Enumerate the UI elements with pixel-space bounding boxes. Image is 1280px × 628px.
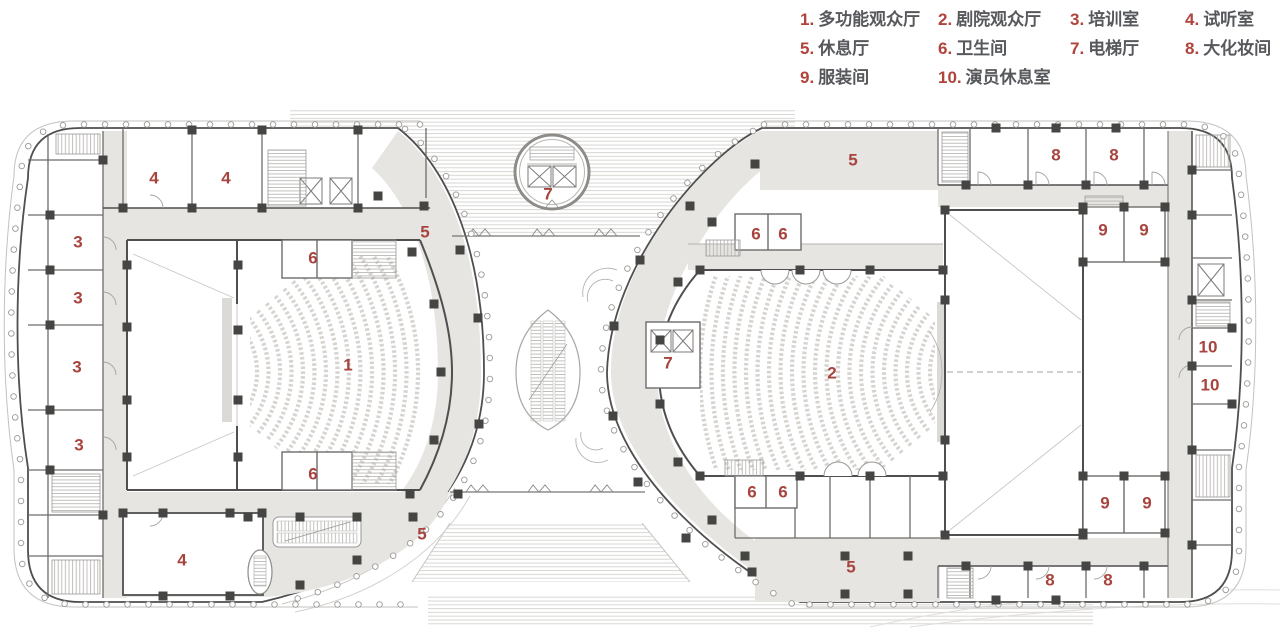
column-dot: [390, 553, 396, 559]
column-dot: [14, 436, 20, 442]
column-dot: [1017, 602, 1023, 608]
column-dot: [1221, 133, 1227, 139]
column-dot: [42, 595, 48, 601]
column-dot: [849, 602, 855, 608]
column-dot: [486, 334, 492, 340]
column: [354, 204, 363, 213]
column-dot: [975, 602, 981, 608]
column-dot: [1139, 122, 1145, 128]
column-dot: [719, 555, 725, 561]
legend-item-label: 培训室: [1088, 10, 1139, 29]
column: [430, 300, 439, 309]
column: [454, 490, 463, 499]
column-dot: [60, 123, 66, 129]
column-dot: [687, 527, 693, 533]
room-label: 5: [417, 525, 426, 544]
column-dot: [1236, 171, 1242, 177]
room-label: 6: [308, 465, 317, 484]
column: [46, 466, 55, 475]
column-dot: [1241, 423, 1247, 429]
column-dot: [782, 122, 788, 128]
column-dot: [377, 602, 383, 608]
column: [1079, 472, 1088, 481]
room-label: 6: [308, 249, 317, 268]
column-dot: [485, 313, 491, 319]
column-dot: [471, 458, 477, 464]
column: [1052, 124, 1061, 133]
column: [656, 336, 665, 345]
column-dot: [13, 226, 19, 232]
column-dot: [1246, 297, 1252, 303]
column: [939, 472, 948, 481]
column: [119, 204, 128, 213]
legend-item: 3.培训室: [1070, 10, 1139, 30]
column: [1024, 181, 1033, 190]
column-dot: [611, 428, 617, 434]
column: [46, 266, 55, 275]
column-dot: [479, 272, 485, 278]
column-dot: [333, 122, 339, 128]
column: [1188, 362, 1197, 371]
column: [258, 204, 267, 213]
legend-item-number: 7.: [1070, 39, 1088, 58]
column-dot: [10, 268, 16, 274]
column: [1161, 258, 1170, 267]
column-dot: [658, 497, 664, 503]
column: [123, 261, 132, 270]
column-dot: [1241, 213, 1247, 219]
column: [234, 326, 243, 335]
column: [656, 400, 665, 409]
column: [1079, 258, 1088, 267]
column: [841, 590, 850, 599]
central-escalator: [516, 310, 580, 430]
column-dot: [18, 540, 24, 546]
column: [234, 396, 243, 405]
column: [1120, 472, 1129, 481]
column-dot: [1245, 276, 1251, 282]
column: [1188, 166, 1197, 175]
room-label: 2: [827, 364, 836, 383]
column: [296, 513, 305, 522]
column-dot: [81, 122, 87, 128]
room-label: 8: [1109, 146, 1118, 165]
column: [1140, 562, 1149, 571]
column-dot: [933, 602, 939, 608]
column-dot: [1223, 587, 1229, 593]
column: [634, 478, 643, 487]
column: [456, 246, 465, 255]
column-dot: [83, 602, 89, 608]
column: [46, 321, 55, 330]
column-dot: [1236, 506, 1242, 512]
column: [234, 453, 243, 462]
column-dot: [891, 602, 897, 608]
column-dot: [866, 122, 872, 128]
column: [226, 509, 235, 518]
column: [1082, 562, 1091, 571]
room-label: 10: [1201, 376, 1220, 395]
legend-item-label: 大化妆间: [1203, 39, 1271, 58]
legend-item-number: 9.: [800, 68, 818, 87]
column: [406, 490, 415, 499]
column-dot: [123, 122, 129, 128]
column-dot: [315, 589, 321, 595]
column-dot: [482, 293, 488, 299]
legend-item-number: 2.: [938, 10, 956, 29]
column: [1112, 124, 1121, 133]
column-dot: [396, 122, 402, 128]
legend-item-label: 电梯厅: [1088, 39, 1139, 58]
column: [353, 556, 362, 565]
column: [609, 412, 618, 421]
column-dot: [487, 376, 493, 382]
column-dot: [11, 394, 17, 400]
column-dot: [432, 156, 438, 162]
column: [610, 322, 619, 331]
column-dot: [474, 251, 480, 257]
column: [682, 534, 691, 543]
legend-item: 10.演员休息室: [938, 68, 1051, 88]
column: [188, 204, 197, 213]
column-dot: [1236, 527, 1242, 533]
column-dot: [803, 122, 809, 128]
column: [258, 509, 267, 518]
column-dot: [828, 602, 834, 608]
column-dot: [249, 122, 255, 128]
column-dot: [621, 446, 627, 452]
column-dot: [272, 602, 278, 608]
column: [1082, 181, 1091, 190]
column-dot: [1233, 569, 1239, 575]
column-dot: [453, 192, 459, 198]
column: [474, 314, 483, 323]
room-label: 6: [778, 483, 787, 502]
column-dot: [1236, 464, 1242, 470]
column-dot: [1243, 402, 1249, 408]
column-dot: [671, 196, 677, 202]
column: [1120, 203, 1129, 212]
room-label: 3: [72, 358, 81, 377]
column: [1079, 203, 1088, 212]
column: [636, 256, 645, 265]
column: [1161, 529, 1170, 538]
column: [188, 126, 197, 135]
legend-item-label: 剧院观众厅: [956, 10, 1041, 29]
column-dot: [1143, 602, 1149, 608]
column-dot: [1038, 602, 1044, 608]
legend-item-label: 休息厅: [818, 39, 869, 58]
column-dot: [402, 126, 408, 132]
column-dot: [1238, 192, 1244, 198]
column-dot: [17, 456, 23, 462]
column-dot: [887, 122, 893, 128]
room-label: 9: [1139, 221, 1148, 240]
legend-item-number: 10.: [938, 68, 966, 87]
column-dot: [789, 601, 795, 607]
column-dot: [469, 231, 475, 237]
column: [1079, 529, 1088, 538]
column: [696, 472, 705, 481]
column-dot: [165, 122, 171, 128]
column: [1188, 446, 1197, 455]
column-dot: [40, 129, 46, 135]
column-dot: [478, 438, 484, 444]
column-dot: [1122, 602, 1128, 608]
column: [226, 592, 235, 601]
legend-item: 2.剧院观众厅: [938, 10, 1041, 30]
column: [119, 509, 128, 518]
column-dot: [635, 247, 641, 253]
column: [1161, 472, 1170, 481]
room-label: 3: [73, 233, 82, 252]
column: [696, 266, 705, 275]
column-dot: [335, 582, 341, 588]
column-dot: [11, 247, 17, 253]
column-dot: [407, 541, 413, 547]
column-dot: [609, 305, 615, 311]
column-dot: [1244, 255, 1250, 261]
column-dot: [1076, 122, 1082, 128]
room-label: 6: [751, 225, 760, 244]
column-dot: [144, 122, 150, 128]
column-dot: [732, 139, 738, 145]
column-dot: [658, 212, 664, 218]
column-dot: [9, 289, 15, 295]
column-dot: [632, 464, 638, 470]
column: [741, 552, 750, 561]
page: { "legend": { "items": [ {"num":"1.","la…: [0, 0, 1280, 628]
column-dot: [17, 184, 23, 190]
room-label: 3: [74, 436, 83, 455]
column-dot: [167, 602, 173, 608]
legend-item-number: 6.: [938, 39, 956, 58]
column-dot: [625, 266, 631, 272]
column-dot: [646, 229, 652, 235]
legend-item: 6.卫生间: [938, 39, 1007, 59]
column: [1024, 562, 1033, 571]
column: [123, 453, 132, 462]
room-label: 4: [177, 551, 187, 570]
column-dot: [1236, 485, 1242, 491]
column-dot: [1164, 602, 1170, 608]
column-dot: [950, 122, 956, 128]
column: [475, 420, 484, 429]
column-dot: [685, 180, 691, 186]
column-dot: [230, 602, 236, 608]
column: [866, 472, 875, 481]
legend-item: 5.休息厅: [800, 39, 869, 59]
column-dot: [1034, 122, 1040, 128]
column-dot: [62, 601, 68, 607]
column-dot: [418, 140, 424, 146]
column-dot: [761, 122, 767, 128]
column-dot: [462, 477, 468, 483]
column-dot: [19, 163, 25, 169]
column-dot: [598, 367, 604, 373]
column-dot: [870, 602, 876, 608]
column-dot: [15, 205, 21, 211]
column: [1188, 541, 1197, 550]
column-dot: [9, 352, 15, 358]
column-dot: [188, 602, 194, 608]
column: [123, 396, 132, 405]
column-dot: [18, 477, 24, 483]
column-dot: [1246, 318, 1252, 324]
column-dot: [417, 122, 423, 128]
column-dot: [736, 567, 742, 573]
column-dot: [616, 285, 622, 291]
column: [939, 266, 948, 275]
column-dot: [603, 325, 609, 331]
column: [1140, 181, 1149, 190]
column-dot: [750, 128, 756, 134]
column-dot: [1232, 151, 1238, 157]
legend-item-number: 8.: [1185, 39, 1203, 58]
column: [796, 266, 805, 275]
room-label: 4: [221, 169, 231, 188]
room-label: 10: [1199, 338, 1218, 357]
column-dot: [807, 602, 813, 608]
room-label: 7: [543, 185, 552, 204]
column: [258, 126, 267, 135]
room-label: 6: [778, 225, 787, 244]
room-label: 9: [1100, 494, 1109, 513]
column-dot: [270, 122, 276, 128]
column: [962, 562, 971, 571]
column-dot: [1245, 360, 1251, 366]
column: [1188, 211, 1197, 220]
column-dot: [18, 498, 24, 504]
column: [941, 436, 950, 445]
column-dot: [1246, 339, 1252, 345]
column-dot: [26, 143, 32, 149]
column: [234, 261, 243, 270]
column: [46, 406, 55, 415]
column-dot: [10, 373, 16, 379]
legend-item: 9.服装间: [800, 68, 869, 88]
column-dot: [1236, 548, 1242, 554]
room-label: 5: [848, 151, 857, 170]
column-dot: [1185, 602, 1191, 608]
column-dot: [1239, 443, 1245, 449]
column: [353, 513, 362, 522]
column: [437, 368, 446, 377]
column: [904, 552, 913, 561]
column-dot: [672, 513, 678, 519]
column-dot: [1013, 122, 1019, 128]
room-label: 9: [1098, 221, 1107, 240]
legend-item-label: 演员休息室: [966, 68, 1051, 87]
column: [296, 581, 305, 590]
column: [941, 296, 950, 305]
column: [941, 206, 950, 215]
room-label: 9: [1142, 494, 1151, 513]
column-dot: [1080, 602, 1086, 608]
column-dot: [1181, 122, 1187, 128]
column-dot: [600, 346, 606, 352]
room-label: 8: [1045, 571, 1054, 590]
column-dot: [700, 165, 706, 171]
column-dot: [209, 602, 215, 608]
column: [904, 590, 913, 599]
room-label: 5: [420, 223, 429, 242]
column: [99, 511, 108, 520]
column: [159, 592, 168, 601]
legend-item-number: 4.: [1185, 10, 1203, 29]
column: [420, 202, 429, 211]
column-dot: [1242, 234, 1248, 240]
column-dot: [295, 596, 301, 602]
legend-item: 7.电梯厅: [1070, 39, 1139, 59]
column: [992, 124, 1001, 133]
column-dot: [207, 122, 213, 128]
column: [1228, 400, 1237, 409]
column-dot: [373, 564, 379, 570]
legend-item-label: 服装间: [818, 68, 869, 87]
column: [244, 513, 253, 522]
column-dot: [1101, 602, 1107, 608]
column-dot: [908, 122, 914, 128]
column-dot: [486, 397, 492, 403]
column-dot: [356, 602, 362, 608]
column: [708, 516, 717, 525]
column: [708, 218, 717, 227]
column-dot: [1202, 124, 1208, 130]
column: [992, 596, 1001, 605]
room-label: 3: [73, 289, 82, 308]
legend: 1.多功能观众厅2.剧院观众厅3.培训室4.试听室5.休息厅6.卫生间7.电梯厅…: [0, 0, 1280, 100]
column-dot: [824, 122, 830, 128]
column-dot: [9, 331, 15, 337]
room-label: 1: [343, 356, 352, 375]
legend-item-number: 1.: [800, 10, 818, 29]
legend-item-label: 试听室: [1203, 10, 1254, 29]
column: [941, 531, 950, 540]
column-dot: [1205, 598, 1211, 604]
room-label: 6: [747, 483, 756, 502]
column: [430, 436, 439, 445]
column-dot: [335, 602, 341, 608]
column-dot: [314, 602, 320, 608]
column: [748, 568, 757, 577]
column-dot: [845, 122, 851, 128]
column-dot: [354, 574, 360, 580]
column-dot: [375, 122, 381, 128]
column-dot: [715, 151, 721, 157]
column-dot: [954, 602, 960, 608]
column-dot: [293, 602, 299, 608]
column-dot: [20, 561, 26, 567]
column-dot: [104, 602, 110, 608]
column-dot: [443, 173, 449, 179]
legend-item-number: 5.: [800, 39, 818, 58]
column-dot: [146, 602, 152, 608]
column: [1228, 324, 1237, 333]
column: [1052, 596, 1061, 605]
column-dot: [600, 387, 606, 393]
column-dot: [462, 211, 468, 217]
column: [409, 513, 418, 522]
column-dot: [228, 122, 234, 128]
room-label: 5: [846, 558, 855, 577]
column: [408, 248, 417, 257]
column: [674, 278, 683, 287]
column-dot: [251, 602, 257, 608]
room-label: 8: [1103, 571, 1112, 590]
room-label: 4: [149, 169, 159, 188]
column: [674, 458, 683, 467]
